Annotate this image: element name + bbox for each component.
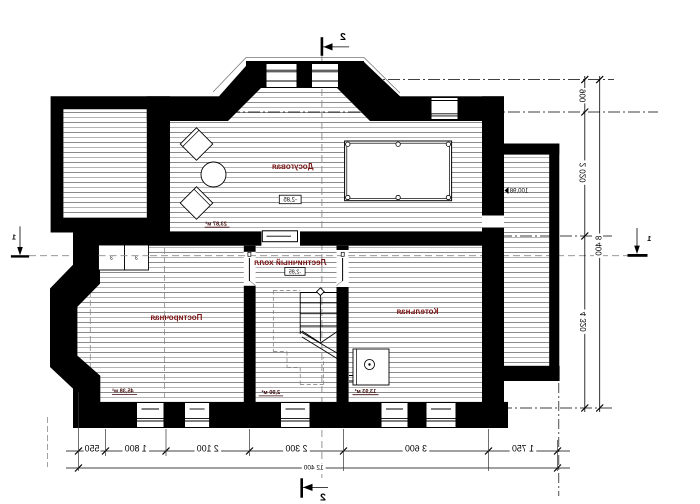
svg-text:3: 3 <box>110 255 113 261</box>
svg-text:3 600: 3 600 <box>405 444 427 454</box>
svg-text:1: 1 <box>12 233 16 242</box>
svg-text:Досуговая: Досуговая <box>272 162 314 171</box>
svg-text:100,98: 100,98 <box>509 189 528 195</box>
svg-text:2: 2 <box>340 31 346 43</box>
svg-text:2 300: 2 300 <box>285 444 307 454</box>
svg-text:1: 1 <box>647 234 651 243</box>
svg-text:Лестничный холл: Лестничный холл <box>254 258 326 267</box>
svg-text:13,93 м²: 13,93 м² <box>355 388 377 395</box>
svg-text:550: 550 <box>85 444 100 454</box>
svg-text:2 020: 2 020 <box>578 163 587 184</box>
svg-text:1 800: 1 800 <box>125 444 147 454</box>
svg-text:12 400: 12 400 <box>303 465 323 472</box>
svg-text:23,87 м²: 23,87 м² <box>205 220 227 227</box>
svg-text:45,38 м²: 45,38 м² <box>112 388 134 395</box>
svg-text:2: 2 <box>320 492 326 504</box>
svg-text:8 400: 8 400 <box>594 236 603 257</box>
svg-text:Постирочная: Постирочная <box>150 313 202 322</box>
svg-text:3: 3 <box>135 255 138 261</box>
svg-text:Котельная: Котельная <box>396 307 438 316</box>
svg-text:1 750: 1 750 <box>512 444 534 454</box>
svg-text:2 100: 2 100 <box>197 444 219 454</box>
svg-text:-2,85: -2,85 <box>289 269 302 275</box>
svg-text:2,90 м²: 2,90 м² <box>262 389 281 396</box>
svg-text:900: 900 <box>579 89 588 103</box>
svg-text:4 320: 4 320 <box>579 312 588 333</box>
svg-text:-2,85: -2,85 <box>283 198 297 204</box>
